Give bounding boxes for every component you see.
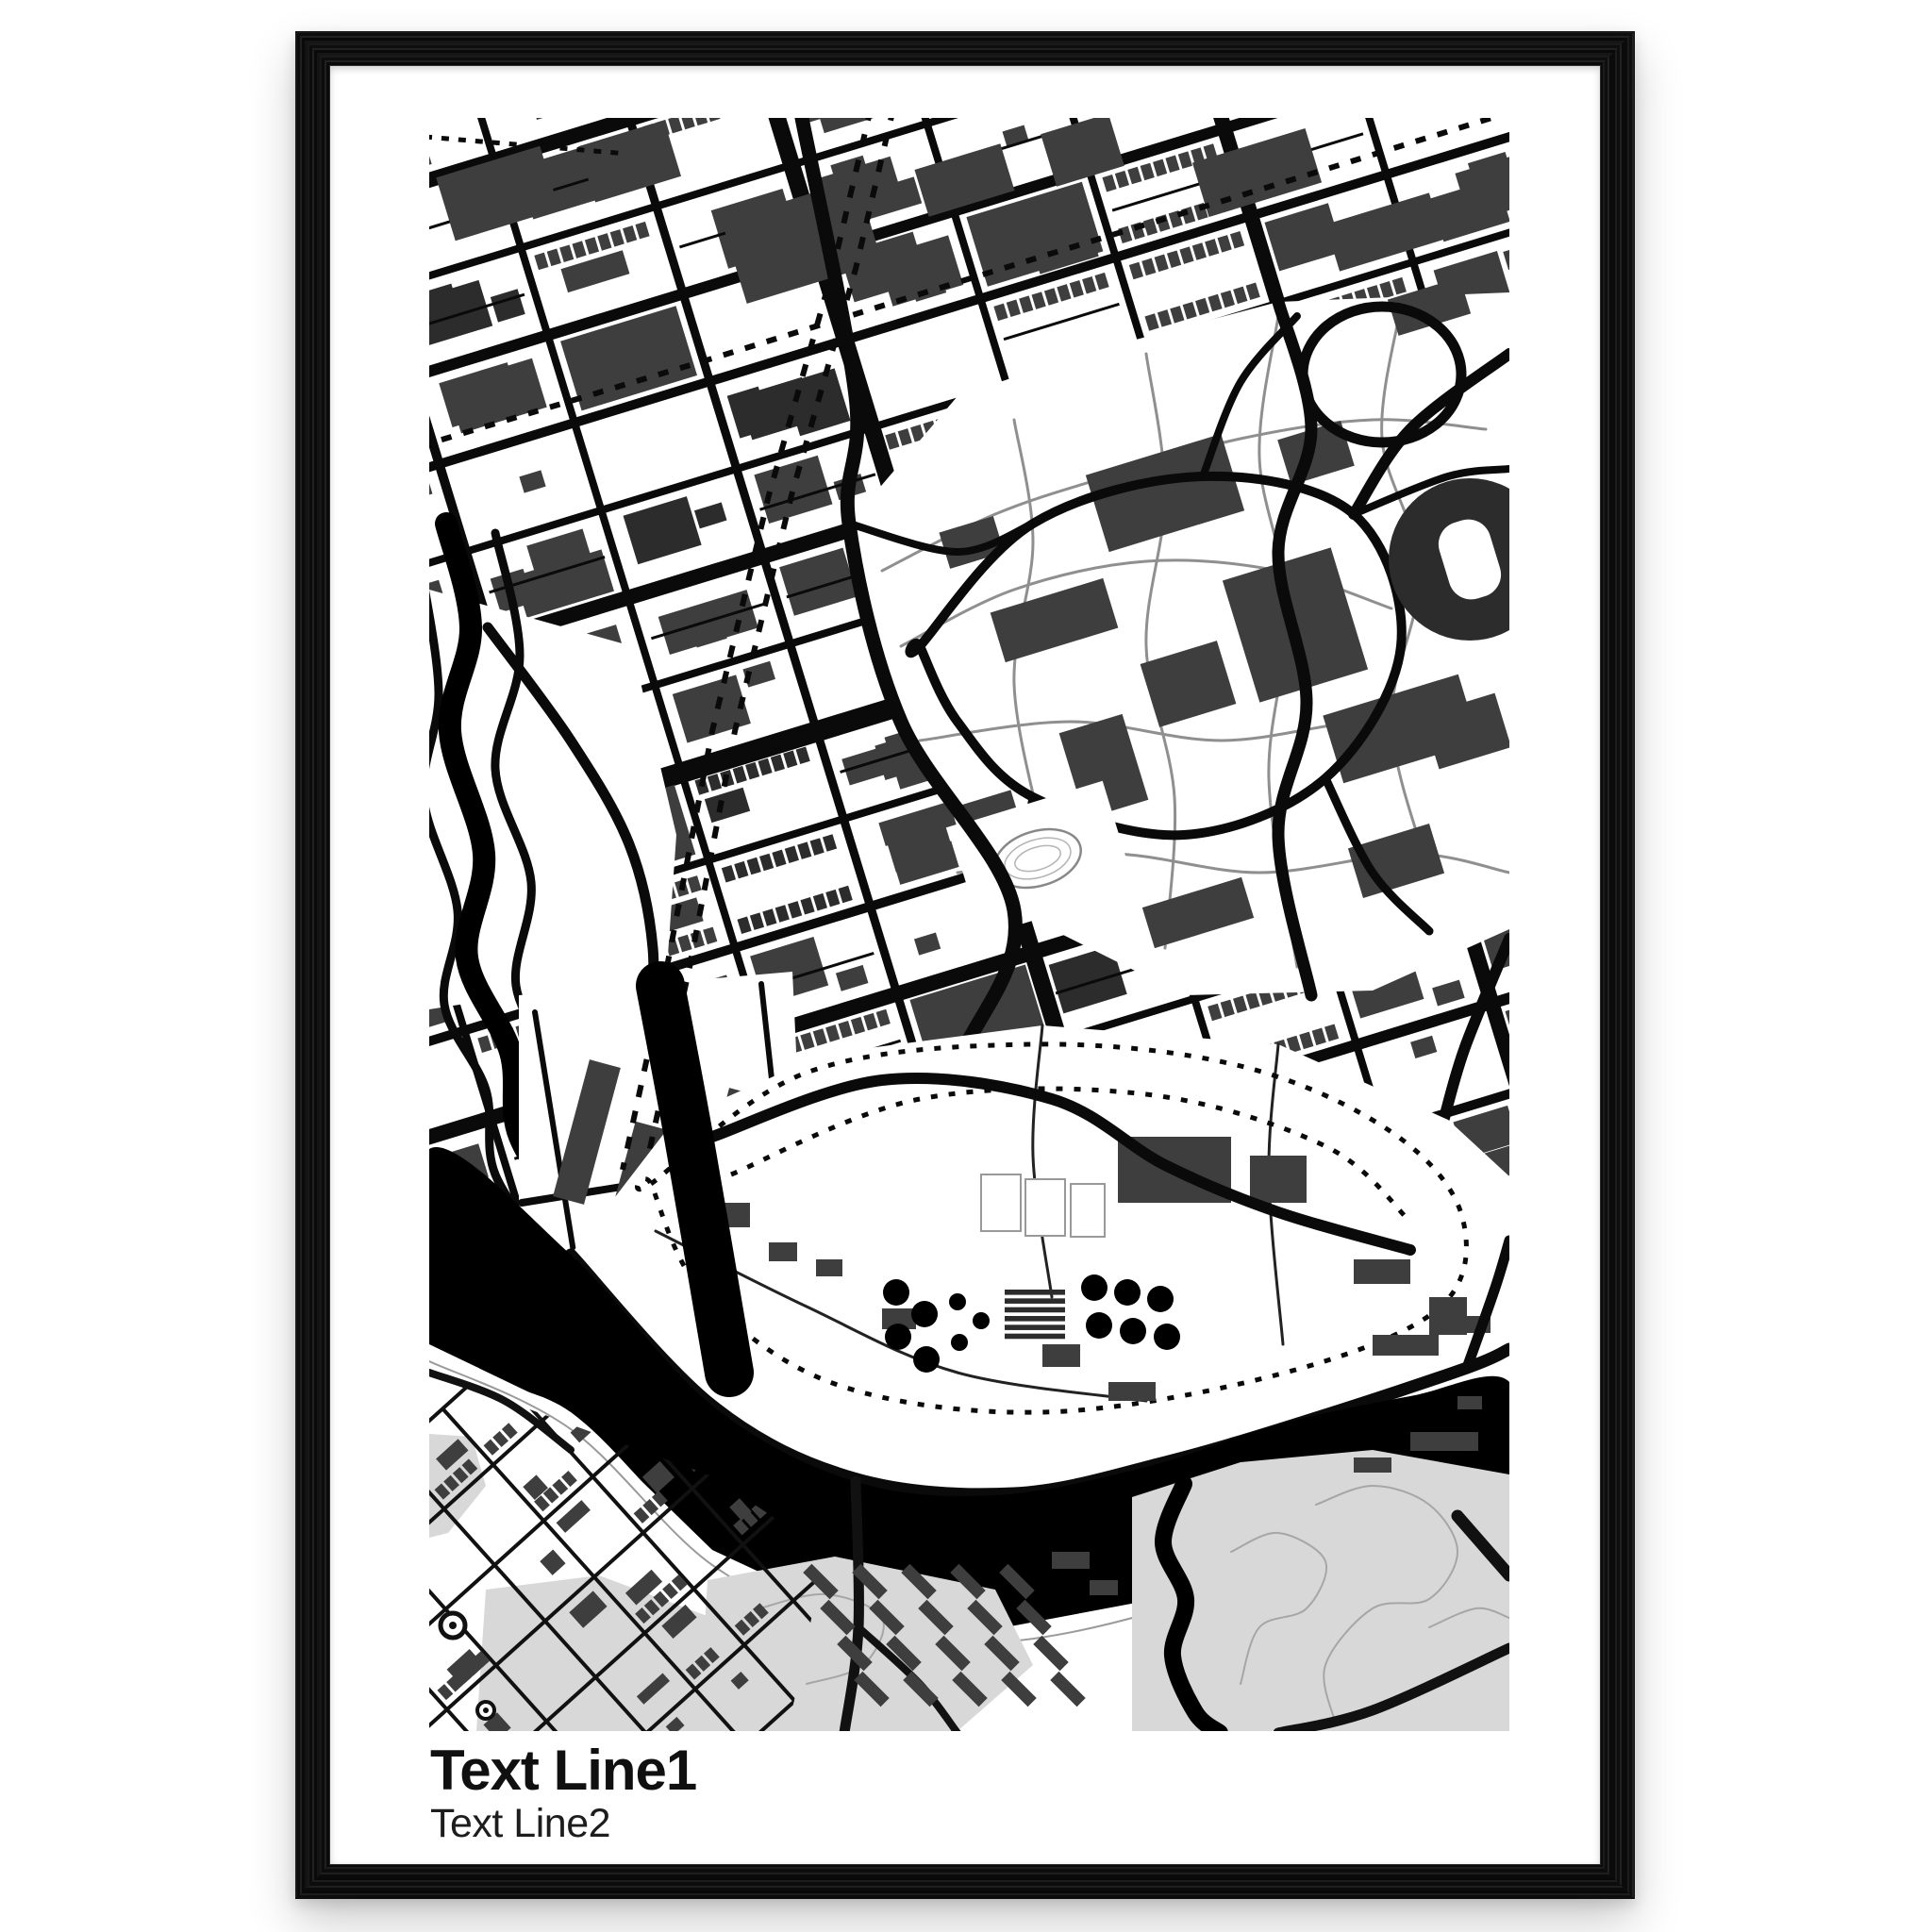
mockup-stage: Text Line1 Text Line2 <box>0 0 1932 1932</box>
frame-wood-right <box>1600 31 1635 1899</box>
frame-wood-bottom <box>295 1864 1635 1899</box>
poster-caption: Text Line1 Text Line2 <box>430 1740 696 1846</box>
city-map <box>429 118 1509 1731</box>
caption-line2: Text Line2 <box>430 1802 696 1846</box>
map-print <box>429 118 1509 1731</box>
frame-wood-left <box>295 31 330 1899</box>
poster-frame: Text Line1 Text Line2 <box>295 31 1635 1899</box>
frame-wood-top <box>295 31 1635 66</box>
poster-matte: Text Line1 Text Line2 <box>330 66 1600 1864</box>
caption-line1: Text Line1 <box>430 1740 696 1800</box>
